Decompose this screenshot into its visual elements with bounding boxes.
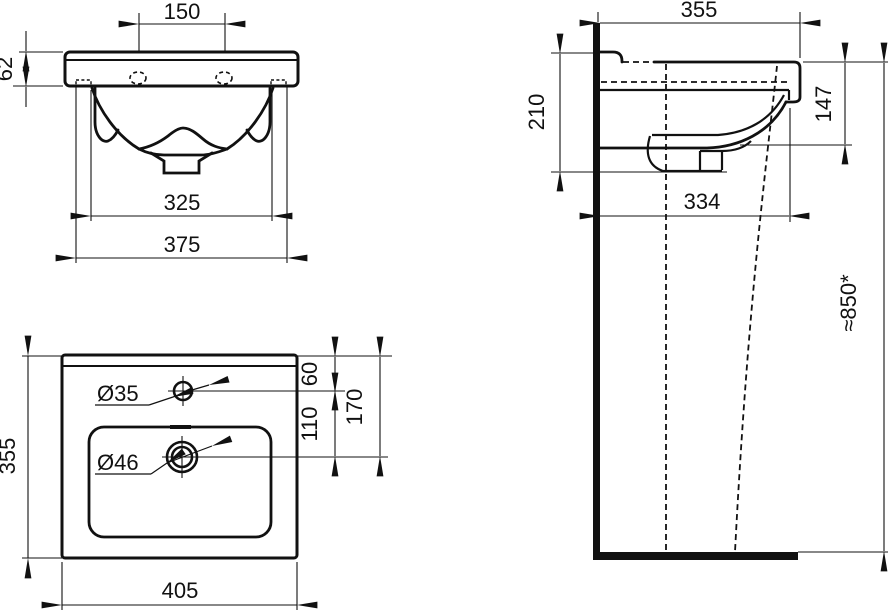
dim-label-apron-height: 62: [0, 57, 17, 81]
dim-plan-width: 405: [62, 562, 297, 610]
dim-label-fixing-inner-width: 325: [164, 190, 201, 215]
technical-drawing-sheet: 150 62 325 375: [0, 0, 896, 616]
dim-hole-offsets: 60 110 170: [297, 356, 392, 456]
dim-plan-depth: 355: [0, 356, 62, 558]
dim-label-waste-offset: 170: [342, 389, 367, 426]
dim-apron-height: 62: [0, 31, 63, 107]
dim-label-waste-hole-diameter: Ø46: [97, 450, 139, 475]
front-slab: [65, 52, 298, 86]
plan-bowl: [89, 427, 271, 537]
dim-label-fixing-outer-width: 375: [164, 232, 201, 257]
dim-rim-height-from-floor: ≈850*: [798, 63, 888, 552]
washbasin-three-view-drawing: 150 62 325 375: [0, 0, 896, 616]
dim-label-tap-hole-diameter: Ø35: [97, 381, 139, 406]
dim-label-tap-to-waste: 110: [297, 406, 322, 441]
plan-view: Ø35 Ø46 355 405: [0, 355, 392, 610]
dim-label-plan-width: 405: [162, 578, 199, 603]
floor-section: [593, 552, 798, 560]
dim-side-depth: 355: [598, 0, 800, 58]
front-right-bracket: [247, 88, 270, 141]
dim-label-basin-front-height: 147: [811, 86, 836, 123]
dim-label-side-depth: 355: [681, 0, 718, 22]
front-bowl-outline: [92, 88, 273, 173]
dim-label-tap-hole-spacing: 150: [164, 0, 201, 24]
side-basin: [600, 52, 800, 171]
dim-label-rim-height-from-floor: ≈850*: [836, 274, 861, 332]
side-view: 355 147 210 334 ≈850*: [524, 0, 888, 560]
waste-hole: [162, 436, 388, 478]
front-view: 150 62 325 375: [0, 0, 298, 263]
dim-label-basin-total-height: 210: [524, 94, 549, 131]
dim-label-plan-depth: 355: [0, 438, 20, 475]
dim-label-underside-depth: 334: [684, 189, 721, 214]
dim-label-tap-offset: 60: [297, 362, 322, 386]
wall-section: [593, 23, 600, 560]
